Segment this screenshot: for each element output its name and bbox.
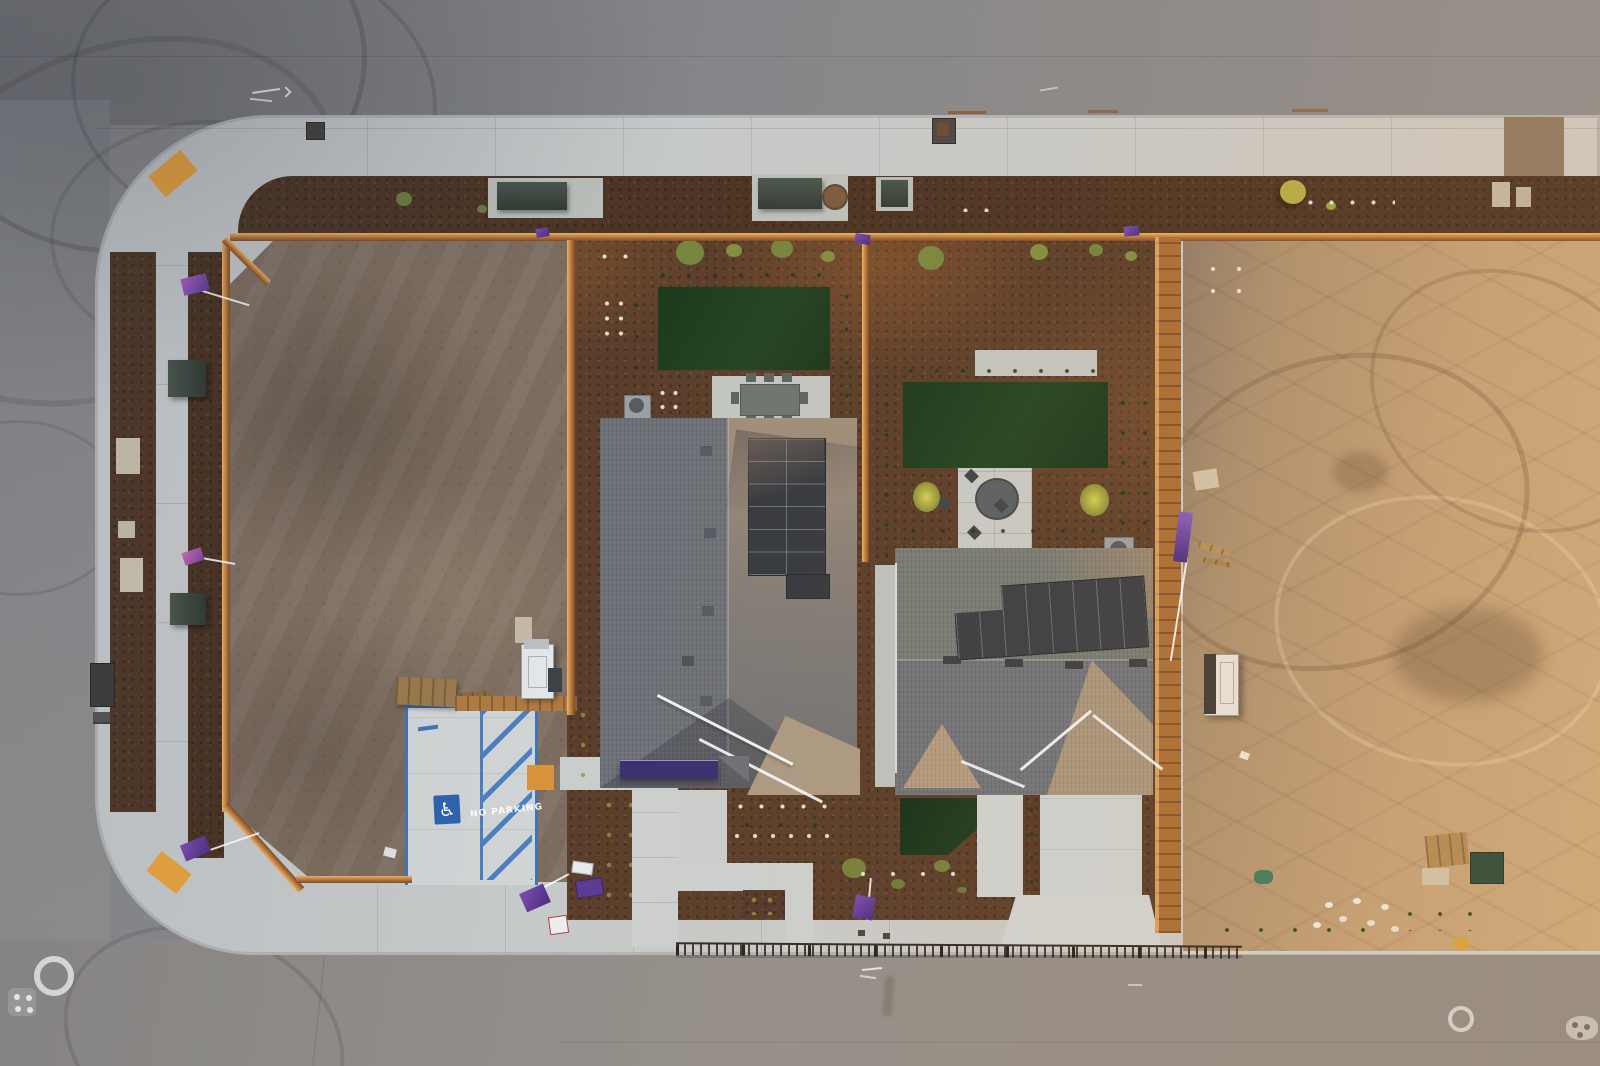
top-strip-shrub-row [300, 220, 1590, 233]
painted-cluster-marking [1566, 1016, 1598, 1040]
flower-bed-shrubs [730, 812, 838, 846]
house2-gutter-line [895, 563, 897, 773]
west-bed-plants [598, 790, 632, 902]
dining-table [740, 384, 800, 416]
dirt-stain [1333, 452, 1388, 492]
utility-box [881, 180, 908, 207]
utility-pad [116, 438, 140, 474]
pallet [1424, 832, 1469, 868]
concrete-slab [1422, 868, 1449, 885]
front-walk-2 [977, 795, 1023, 897]
portable-equipment-door [528, 656, 547, 688]
rust-stain [1088, 110, 1118, 113]
tire-track [1183, 237, 1600, 951]
utility-box [170, 593, 206, 625]
right-dirt-lot [1183, 237, 1600, 954]
utility-box [497, 182, 567, 210]
entry-walkway [632, 777, 678, 947]
yellow-object [1454, 938, 1469, 949]
lumber-stack [395, 676, 456, 707]
house1-entry-awning [620, 760, 718, 778]
utility-pad [120, 558, 143, 592]
portable-unit-top [1204, 654, 1216, 714]
house2-eave-line [895, 659, 1153, 661]
utility-box [168, 360, 206, 397]
yard-fence-1 [567, 240, 575, 715]
curb-weeds [1395, 905, 1485, 931]
house1-solar-extension [786, 574, 830, 599]
marketing-flag [852, 894, 876, 920]
marketing-flag [1124, 225, 1140, 237]
pavement-crack [0, 56, 1600, 57]
chalk-marking [1128, 984, 1142, 986]
handicap-symbol: ♿ [433, 794, 460, 824]
painted-dice-marking [8, 988, 36, 1016]
concrete-slab [1193, 468, 1220, 491]
painted-cluster-dot [1572, 1022, 1578, 1028]
sidewalk-utility-cover-lid [937, 123, 949, 136]
sign-small [548, 915, 569, 935]
roof-vent [700, 446, 712, 456]
site-fence-left [222, 240, 230, 812]
round-patio-table [975, 478, 1019, 520]
bush-flowers [848, 862, 968, 896]
railing-shadow [676, 955, 1242, 958]
utility-pad [1492, 182, 1510, 207]
flower-cluster [600, 296, 626, 340]
turf-lawn-2 [903, 382, 1108, 468]
tree [918, 246, 944, 270]
ornamental-grass [1080, 484, 1109, 516]
utility-pad [1516, 187, 1531, 207]
shrub-row [898, 358, 1110, 374]
curb-inlet-box [90, 663, 115, 707]
dining-chair [746, 373, 756, 382]
fence-boards [455, 696, 577, 711]
painted-dice-dot [14, 994, 20, 1000]
portable-equipment-cap [524, 639, 549, 649]
handicap-symbol-glyph: ♿ [438, 798, 456, 821]
site-fence-top [230, 233, 1600, 241]
turf-lawn-1 [658, 287, 830, 370]
equipment-frame [548, 668, 562, 692]
flower-cluster [955, 202, 995, 212]
flower-cluster [594, 248, 628, 264]
portable-unit-door [1220, 662, 1234, 704]
manhole-cover [822, 184, 848, 210]
ac-unit-fan [629, 398, 644, 413]
shrub-row [650, 262, 840, 280]
drain-box [858, 930, 865, 936]
house1-solar-glare [748, 438, 824, 498]
sidewalk-gap-dirt [1504, 117, 1564, 178]
curb-inlet-grate [93, 712, 110, 724]
driveway [1040, 795, 1142, 900]
utility-box [758, 178, 822, 209]
driveway-side-plants [1024, 798, 1039, 890]
curb-ramp-pad [527, 765, 554, 790]
rust-stain [1292, 109, 1328, 112]
pavement-seam [560, 1042, 1600, 1043]
shrub-row [1112, 388, 1152, 560]
dirt-stain [1393, 607, 1543, 702]
front-walk-band [678, 863, 813, 891]
shrub-row [878, 390, 895, 562]
flower-cluster [656, 386, 684, 418]
dining-chair [731, 392, 739, 404]
sidewalk-utility-cover [306, 122, 325, 140]
dumpster-lid [1470, 852, 1504, 884]
tree [676, 240, 704, 265]
curb-weeds [1210, 922, 1380, 944]
flower-cluster [1300, 194, 1395, 208]
yard-fence-right [1155, 237, 1181, 933]
shrub [396, 192, 412, 206]
front-walk-down [785, 888, 813, 948]
painted-manhole-ring [1448, 1006, 1474, 1032]
painted-manhole-ring [34, 956, 74, 996]
driveway-apron [1000, 895, 1162, 948]
yard-fence-2 [862, 240, 869, 562]
utility-pad [118, 521, 135, 538]
debris-bags [1325, 902, 1333, 908]
ornamental-grass [913, 482, 940, 512]
aerial-photo: ♿ NO PARKING [0, 0, 1600, 1066]
marketing-flag [854, 233, 870, 245]
no-parking-hatch-zone [480, 708, 532, 880]
rust-stain [948, 111, 986, 114]
site-fence-bottom [296, 876, 412, 883]
top-sidewalk-joints [240, 118, 1600, 178]
house1-west-plants [574, 700, 598, 790]
green-object [1254, 870, 1273, 884]
front-pad [678, 790, 727, 870]
dirt-debris-specks [1200, 258, 1260, 298]
planter-inset-grass [746, 893, 782, 915]
